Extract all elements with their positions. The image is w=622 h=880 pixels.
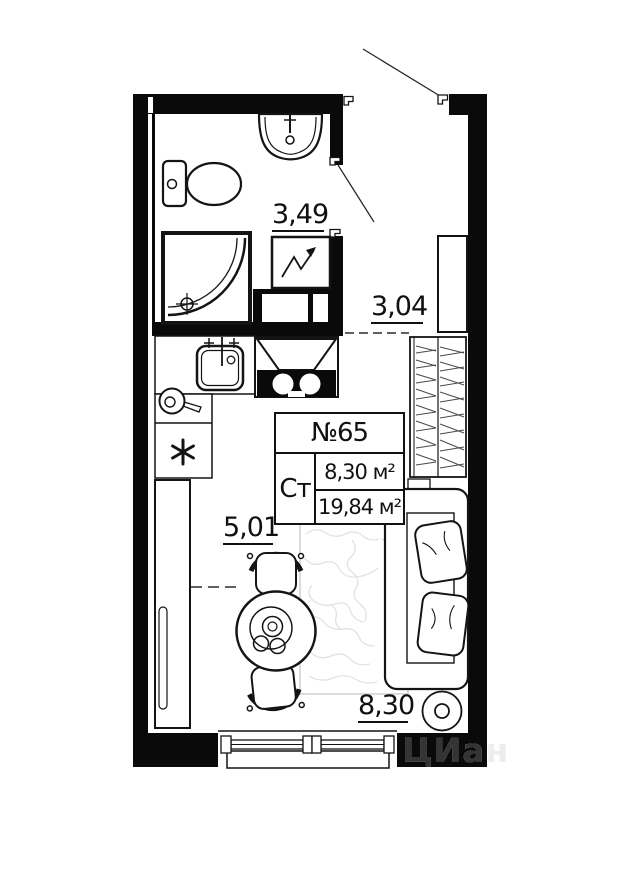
dimension-room-width: 5,01	[223, 514, 273, 545]
pillow-icon	[414, 520, 469, 584]
dining-table	[237, 592, 316, 671]
unit-info-box: №65 Ст 8,30 м² 19,84 м²	[274, 412, 405, 525]
stove-icon	[255, 337, 338, 397]
hinge-icon	[330, 230, 340, 238]
bathroom-sink-icon	[259, 114, 322, 159]
unit-total-area: 19,84 м²	[316, 491, 403, 523]
watermark-on-wall: ЦИан	[397, 733, 487, 767]
cabinet-right	[438, 236, 467, 332]
hinge-icon	[344, 97, 353, 106]
dimension-room-length: 8,30	[358, 692, 408, 723]
unit-type: Ст	[276, 454, 316, 523]
window	[218, 731, 397, 768]
dimension-entry-width: 3,04	[371, 293, 423, 324]
stool-icon	[423, 692, 462, 731]
pillow-icon	[417, 591, 470, 656]
door-hinge-icons	[330, 95, 448, 237]
kitchen-sink-icon	[197, 337, 243, 390]
watermark: ЦИан	[402, 734, 487, 767]
toilet-icon	[163, 161, 241, 206]
unit-number: №65	[276, 414, 403, 454]
floorplan-canvas: 3,49 3,04 5,01 8,30 №65 Ст 8,30 м² 19,84…	[0, 0, 622, 880]
water-heater-icon	[272, 237, 330, 288]
chair-top	[248, 553, 304, 594]
dimension-bathroom-width: 3,49	[272, 201, 324, 232]
bathroom-door-swing	[338, 165, 374, 222]
hinge-icon	[438, 95, 448, 104]
vent-shaft	[253, 289, 343, 336]
wardrobe-left	[155, 480, 190, 728]
shower-icon	[163, 233, 250, 323]
unit-room-area: 8,30 м²	[316, 454, 403, 491]
wardrobe-hatched	[410, 337, 466, 477]
entrance-door-swing	[363, 49, 440, 96]
